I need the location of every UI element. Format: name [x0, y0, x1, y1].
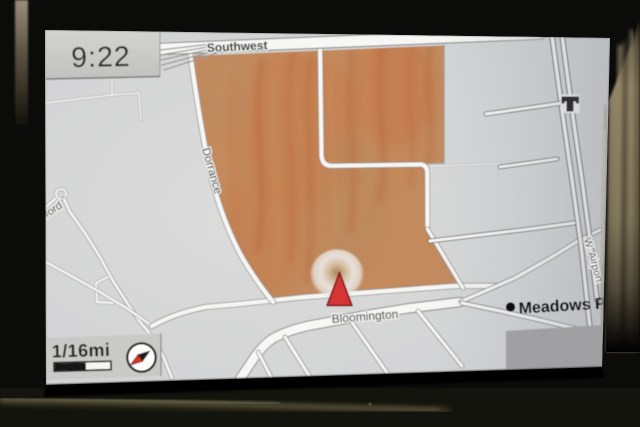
svg-text:Southwest: Southwest	[207, 38, 268, 55]
svg-text:1/16mi: 1/16mi	[52, 340, 111, 362]
svg-text:9:22: 9:22	[71, 41, 131, 74]
